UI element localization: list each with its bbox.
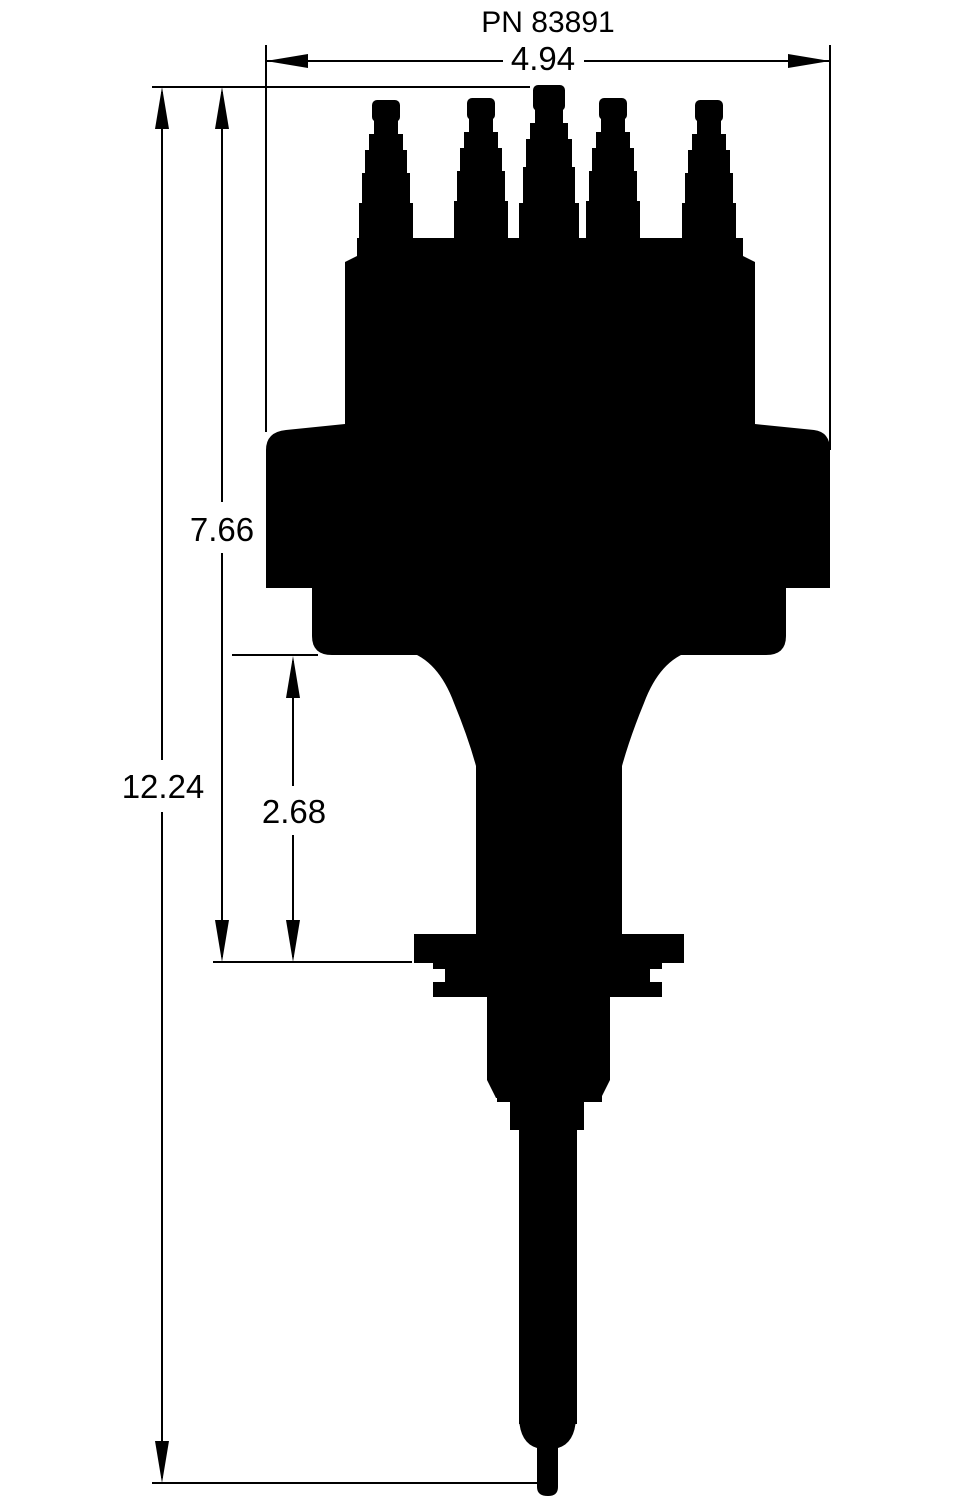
collar-band-notched <box>445 962 650 984</box>
arrowhead-up <box>286 656 300 698</box>
shaft-tip <box>519 1418 576 1496</box>
collar-band-1 <box>414 934 684 963</box>
drive-shaft <box>519 1128 577 1424</box>
dimension-drawing: PN 83891 4.94 7.66 12.24 2.68 <box>0 0 971 1500</box>
cap-body <box>345 238 755 430</box>
neck-taper <box>402 642 691 940</box>
tower-step <box>596 132 630 150</box>
overall-height-dimension-label: 12.24 <box>122 768 205 805</box>
cap-tower-4 <box>586 98 640 261</box>
arrowhead-down <box>215 920 229 962</box>
tower-step <box>530 123 568 141</box>
arrowhead-down <box>155 1441 169 1483</box>
shaft-collar <box>510 1100 584 1130</box>
tower-step <box>592 148 634 173</box>
tower-step <box>469 116 493 134</box>
tower-step <box>526 139 572 169</box>
gear-housing <box>487 995 610 1098</box>
arrowhead-up <box>215 87 229 129</box>
tower-step <box>369 134 403 152</box>
tower-step <box>589 171 637 203</box>
tower-step <box>601 116 625 134</box>
tower-step <box>697 118 721 136</box>
arrowhead-up <box>155 87 169 129</box>
gear-housing-lip <box>497 1088 602 1102</box>
arrowhead-down <box>286 920 300 962</box>
cap-tower-center <box>519 85 579 263</box>
tower-step <box>374 118 398 136</box>
tower-step <box>688 150 730 175</box>
tower-step <box>457 171 505 203</box>
mounting-flange <box>266 424 830 588</box>
tower-step <box>460 148 502 173</box>
tower-step <box>362 173 410 205</box>
tower-step <box>535 107 563 125</box>
arrowhead-left <box>266 54 308 68</box>
upper-height-dimension-label: 7.66 <box>190 511 254 548</box>
cap-tower-2 <box>454 98 508 261</box>
distributor-silhouette <box>266 85 830 1496</box>
arrowhead-right <box>788 54 830 68</box>
drawing-canvas: PN 83891 4.94 7.66 12.24 2.68 <box>0 0 971 1500</box>
tower-step <box>685 173 733 205</box>
tower-step <box>523 167 575 205</box>
part-number-label: PN 83891 <box>481 6 614 39</box>
width-dimension-label: 4.94 <box>511 40 575 77</box>
tower-step <box>692 134 726 152</box>
collar-band-3 <box>433 982 662 997</box>
tower-step <box>365 150 407 175</box>
lower-height-dimension-label: 2.68 <box>262 793 326 830</box>
tower-step <box>464 132 498 150</box>
